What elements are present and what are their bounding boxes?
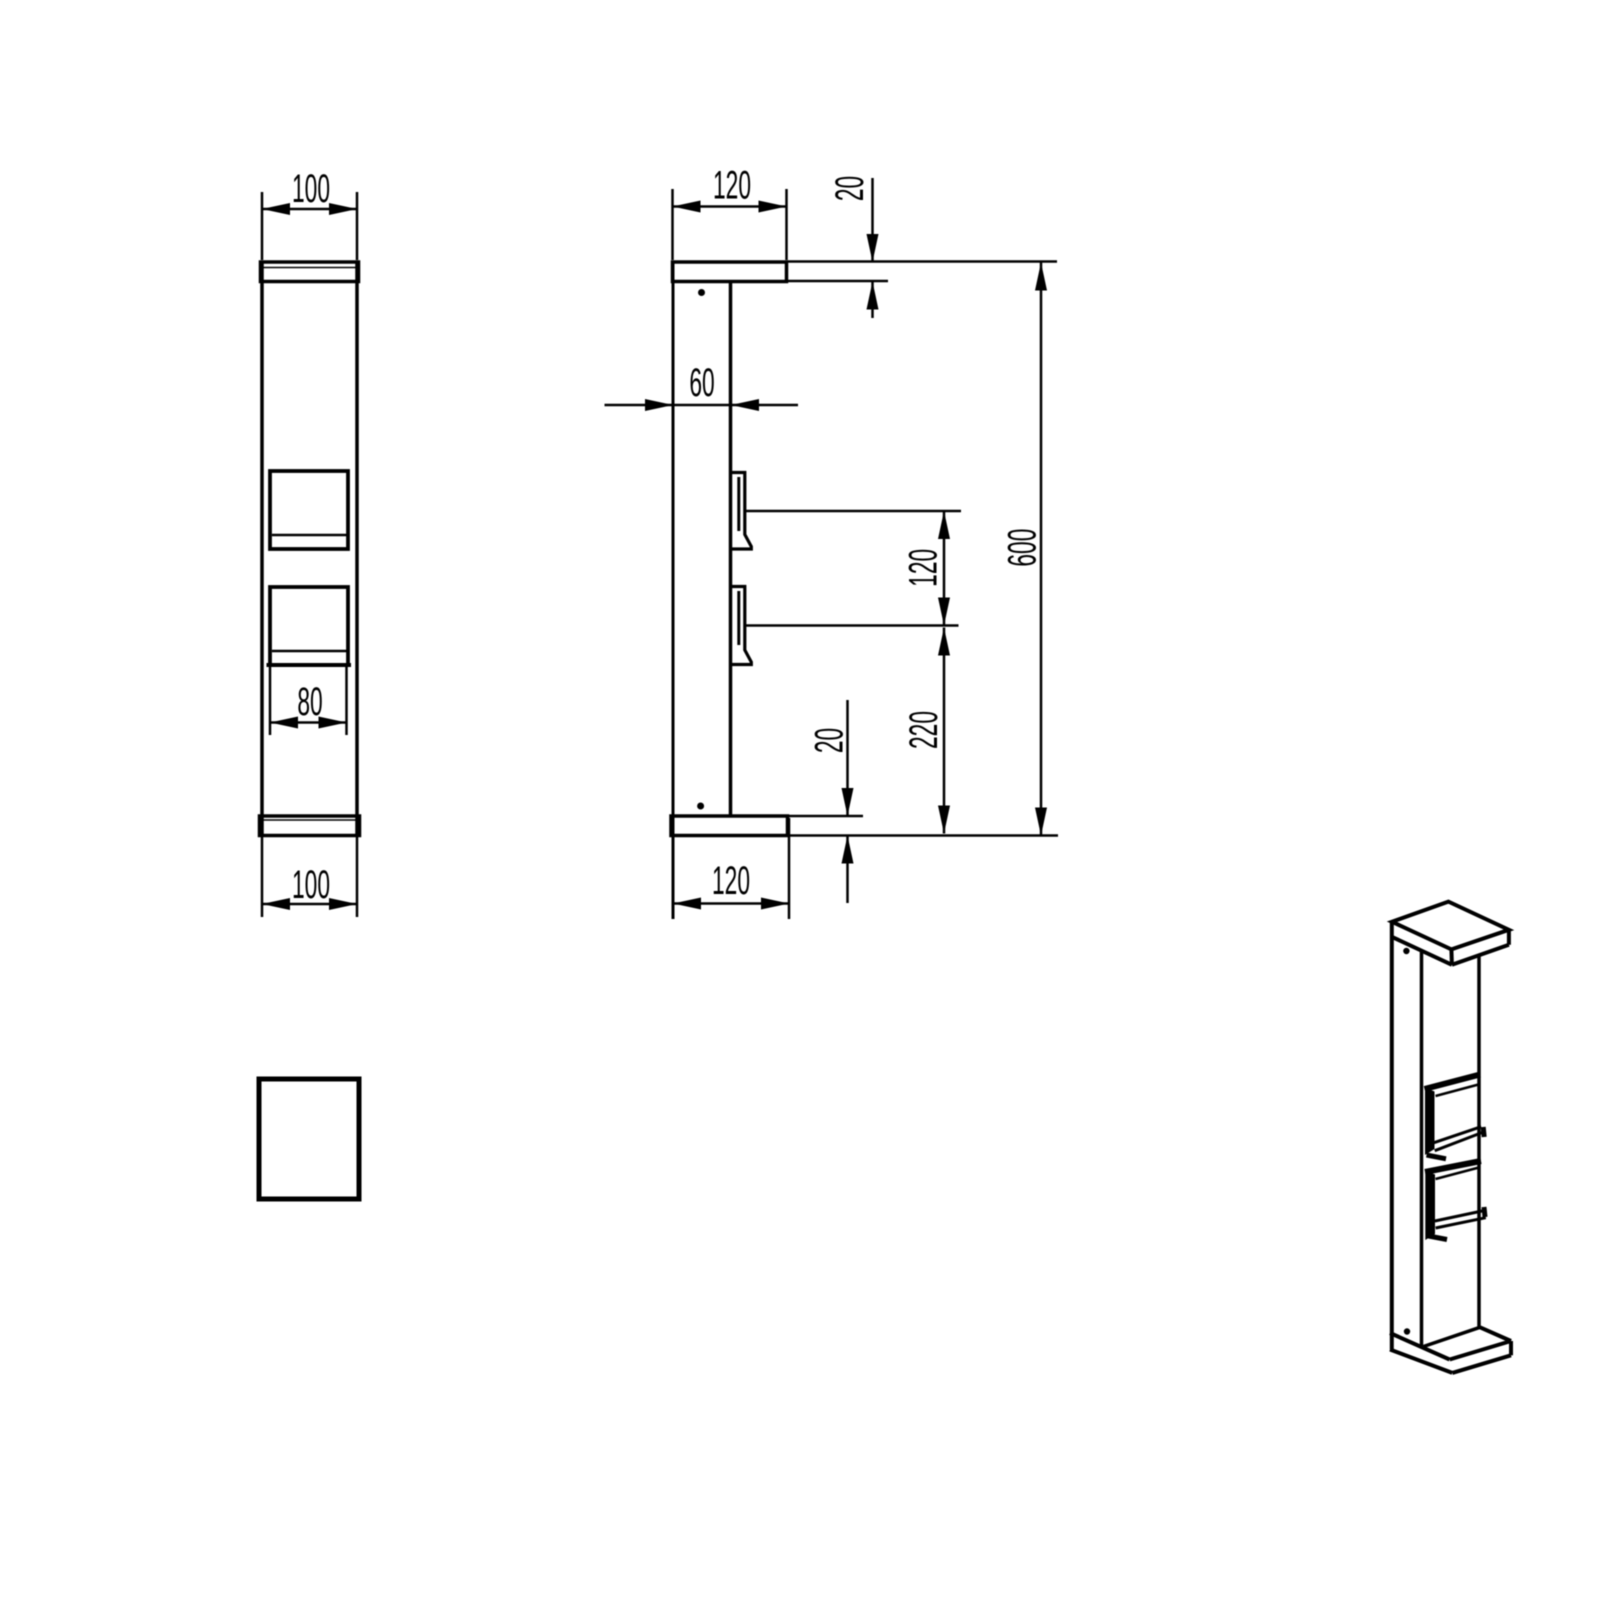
- svg-text:20: 20: [827, 176, 871, 201]
- svg-text:60: 60: [689, 360, 714, 404]
- svg-text:120: 120: [713, 163, 751, 207]
- svg-text:120: 120: [712, 858, 750, 902]
- svg-text:600: 600: [1000, 529, 1044, 567]
- svg-text:120: 120: [901, 549, 945, 587]
- svg-text:20: 20: [807, 728, 851, 753]
- svg-text:220: 220: [901, 711, 945, 749]
- svg-text:80: 80: [297, 679, 322, 723]
- svg-text:100: 100: [292, 862, 330, 906]
- svg-text:100: 100: [292, 166, 330, 210]
